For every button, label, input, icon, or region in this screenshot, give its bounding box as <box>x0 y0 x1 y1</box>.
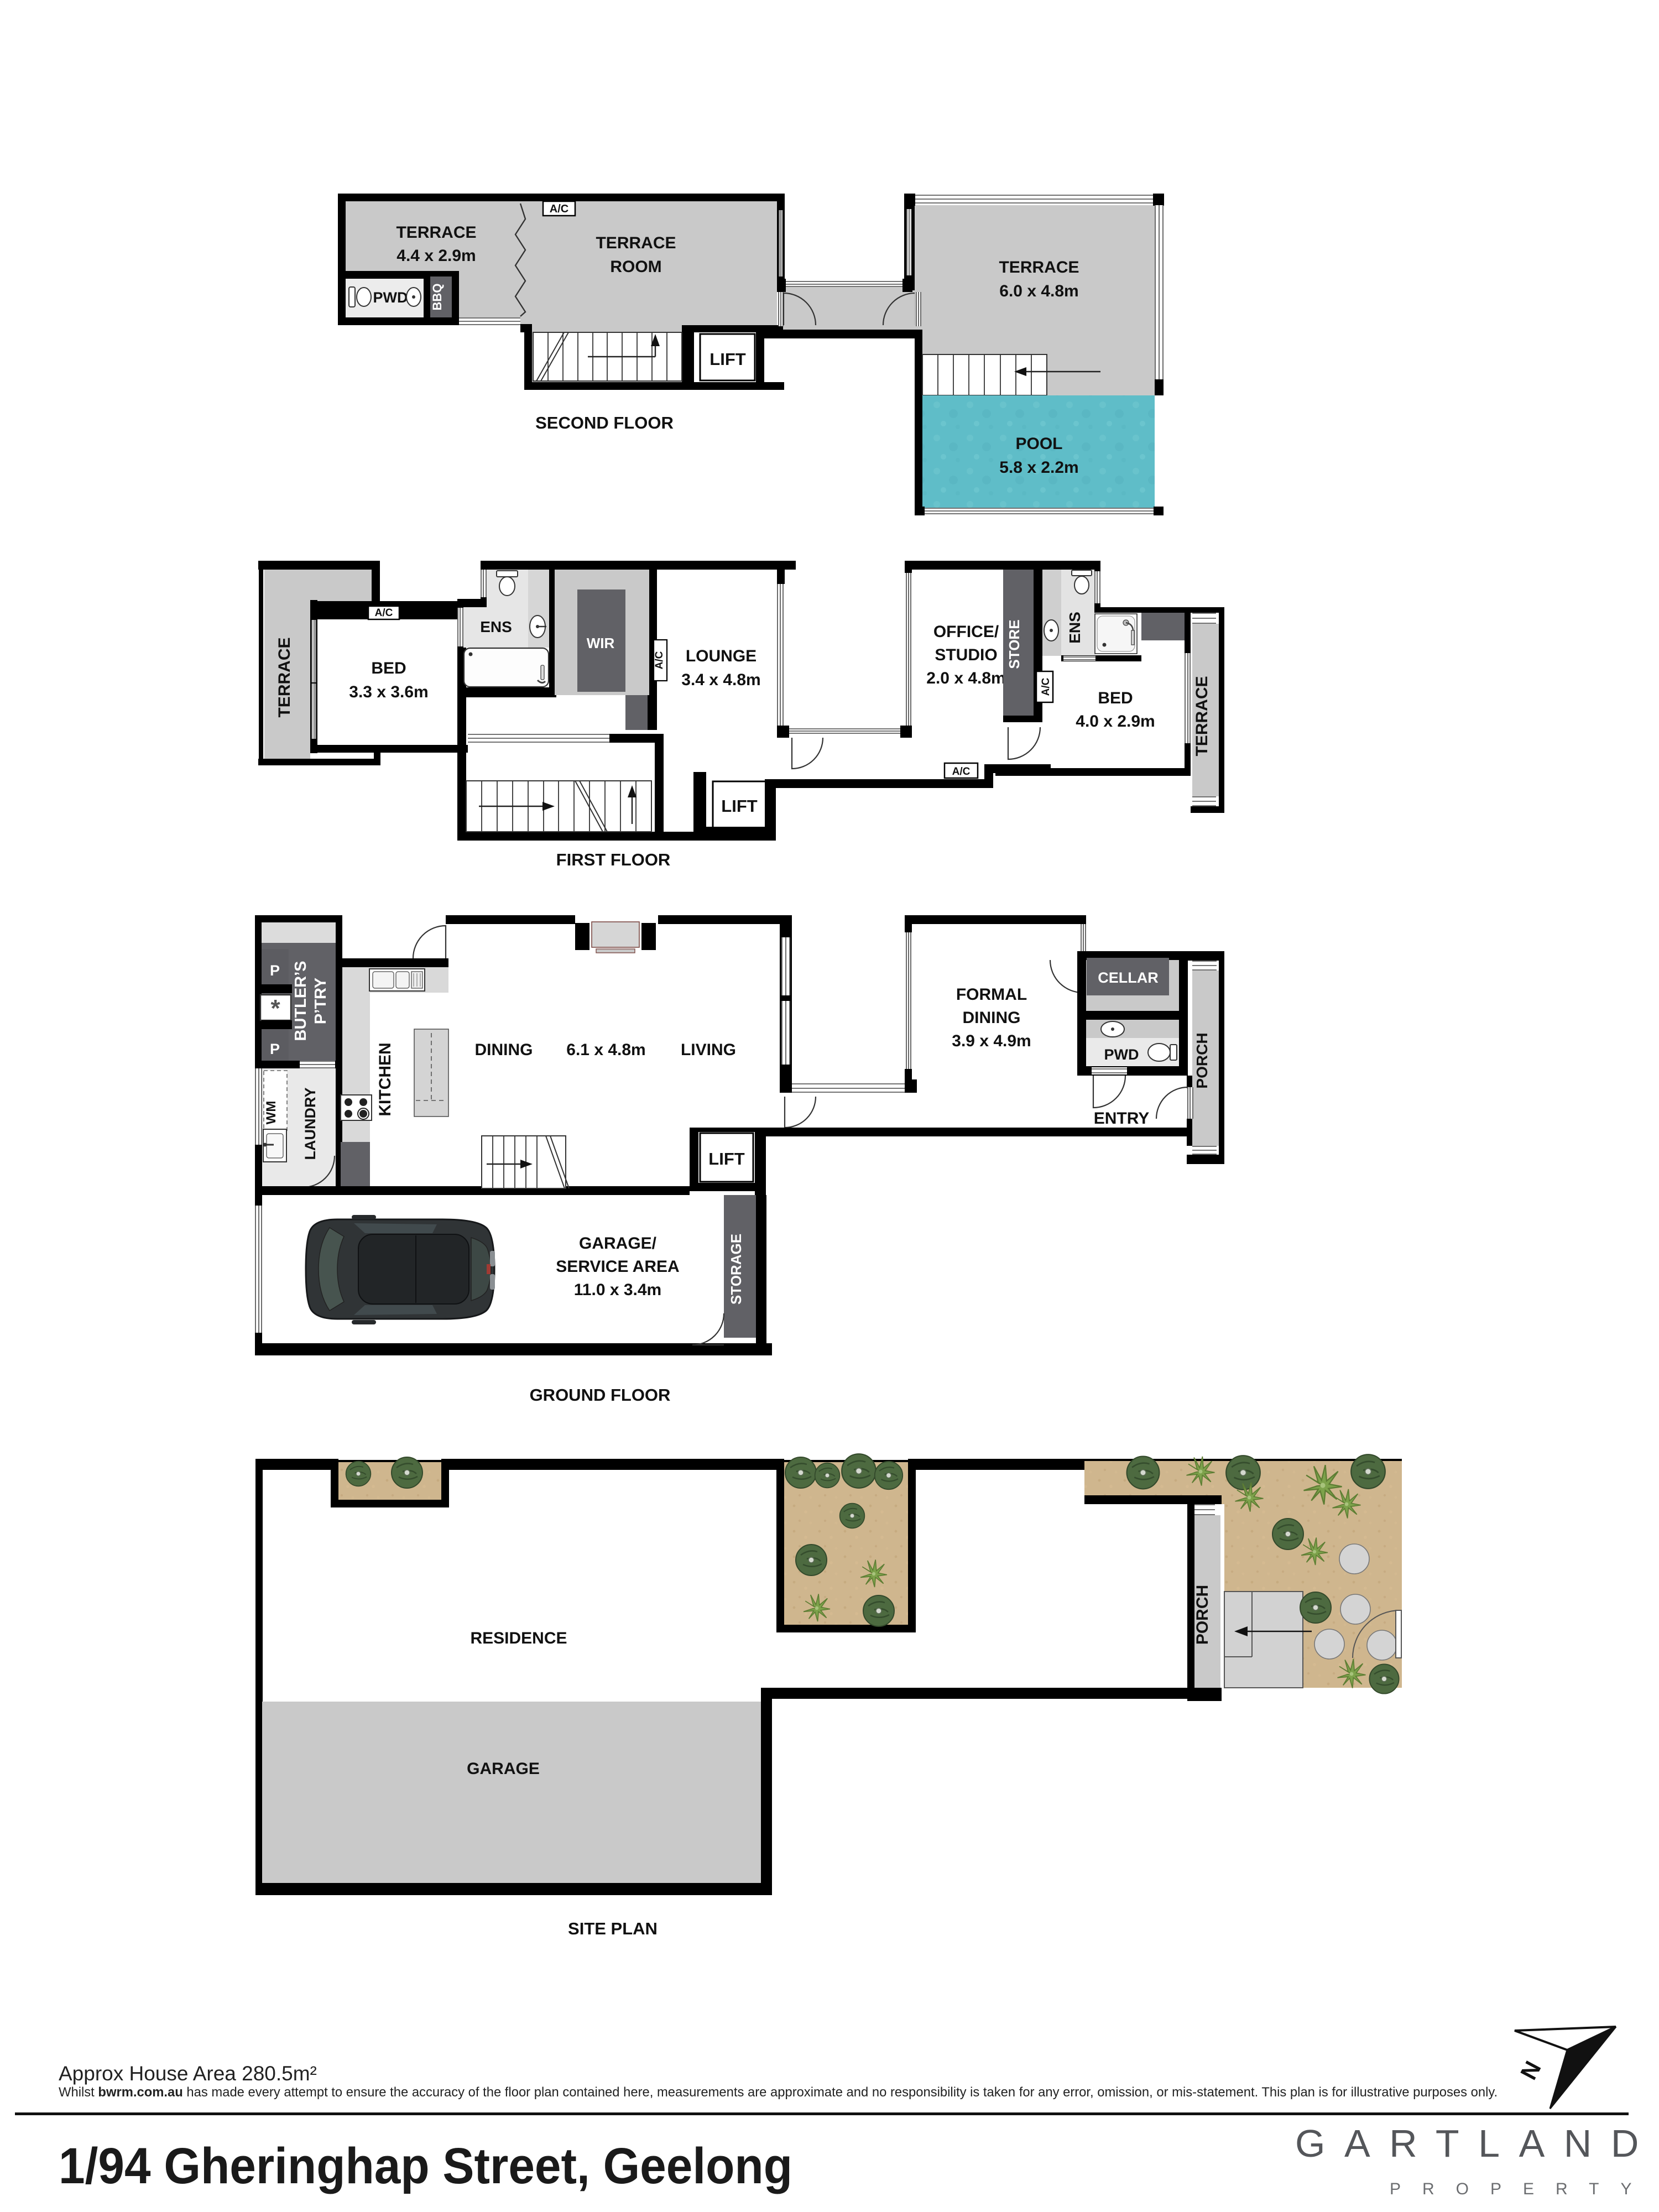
svg-text:4.4 x 2.9m: 4.4 x 2.9m <box>397 247 476 265</box>
svg-text:STUDIO: STUDIO <box>935 646 997 664</box>
svg-text:STORE: STORE <box>1006 619 1022 669</box>
svg-text:*: * <box>270 995 280 1022</box>
svg-text:STORAGE: STORAGE <box>728 1234 744 1305</box>
svg-text:SECOND FLOOR: SECOND FLOOR <box>535 413 674 432</box>
svg-text:CELLAR: CELLAR <box>1098 969 1159 986</box>
svg-text:P’TRY: P’TRY <box>312 978 330 1024</box>
svg-text:PORCH: PORCH <box>1193 1585 1212 1645</box>
svg-text:POOL: POOL <box>1015 435 1062 453</box>
svg-text:3.3 x 3.6m: 3.3 x 3.6m <box>349 683 428 701</box>
svg-text:TERRACE: TERRACE <box>275 637 294 717</box>
svg-text:2.0 x 4.8m: 2.0 x 4.8m <box>926 669 1005 687</box>
svg-text:GARTLAND: GARTLAND <box>1295 2122 1658 2165</box>
svg-text:KITCHEN: KITCHEN <box>376 1042 394 1116</box>
svg-text:BBQ: BBQ <box>430 284 444 311</box>
svg-text:A/C: A/C <box>550 203 568 215</box>
svg-text:DINING: DINING <box>963 1009 1021 1027</box>
svg-text:GARAGE: GARAGE <box>467 1760 540 1778</box>
svg-text:TERRACE: TERRACE <box>596 234 676 252</box>
svg-text:6.0 x 4.8m: 6.0 x 4.8m <box>999 282 1078 300</box>
svg-text:DINING: DINING <box>475 1041 533 1059</box>
svg-text:3.9 x 4.9m: 3.9 x 4.9m <box>952 1032 1031 1050</box>
svg-text:Whilst bwrm.com.au has made ev: Whilst bwrm.com.au has made every attemp… <box>59 2085 1498 2100</box>
svg-text:1/94 Gheringhap Street, Geelon: 1/94 Gheringhap Street, Geelong <box>59 2138 792 2194</box>
svg-text:FIRST FLOOR: FIRST FLOOR <box>556 850 671 869</box>
svg-text:BUTLER’S: BUTLER’S <box>292 961 310 1041</box>
svg-text:TERRACE: TERRACE <box>1193 676 1211 756</box>
svg-text:LAUNDRY: LAUNDRY <box>302 1088 319 1160</box>
svg-text:11.0 x 3.4m: 11.0 x 3.4m <box>574 1281 661 1299</box>
svg-text:WM: WM <box>264 1101 279 1125</box>
svg-text:LIFT: LIFT <box>709 349 745 369</box>
svg-text:LIVING: LIVING <box>681 1041 736 1059</box>
svg-text:SITE PLAN: SITE PLAN <box>568 1919 658 1938</box>
svg-text:PROPERTY: PROPERTY <box>1390 2180 1653 2198</box>
svg-text:ENS: ENS <box>1066 612 1083 644</box>
svg-text:PWD: PWD <box>373 289 408 306</box>
svg-text:A/C: A/C <box>1040 677 1052 696</box>
svg-text:TERRACE: TERRACE <box>999 258 1079 276</box>
svg-text:6.1 x 4.8m: 6.1 x 4.8m <box>566 1041 645 1059</box>
svg-text:A/C: A/C <box>654 651 665 669</box>
svg-text:WIR: WIR <box>587 635 615 651</box>
svg-text:LOUNGE: LOUNGE <box>686 647 757 665</box>
svg-text:LIFT: LIFT <box>721 796 757 816</box>
svg-text:TERRACE: TERRACE <box>396 223 476 242</box>
svg-text:P: P <box>270 1041 280 1057</box>
svg-text:BED: BED <box>1098 689 1133 707</box>
svg-text:RESIDENCE: RESIDENCE <box>470 1629 567 1647</box>
svg-text:A/C: A/C <box>952 766 971 778</box>
svg-text:ENTRY: ENTRY <box>1094 1109 1150 1128</box>
svg-text:A/C: A/C <box>375 607 393 619</box>
svg-text:3.4 x 4.8m: 3.4 x 4.8m <box>681 671 760 689</box>
svg-text:ENS: ENS <box>480 618 512 635</box>
svg-text:LIFT: LIFT <box>708 1149 744 1168</box>
svg-text:5.8 x 2.2m: 5.8 x 2.2m <box>999 458 1078 477</box>
svg-text:OFFICE/: OFFICE/ <box>933 623 999 641</box>
svg-text:4.0 x 2.9m: 4.0 x 2.9m <box>1076 712 1155 731</box>
svg-text:GARAGE/: GARAGE/ <box>579 1234 657 1253</box>
svg-text:SERVICE AREA: SERVICE AREA <box>556 1258 679 1276</box>
svg-text:GROUND FLOOR: GROUND FLOOR <box>530 1385 671 1405</box>
svg-text:FORMAL: FORMAL <box>956 985 1027 1004</box>
svg-text:BED: BED <box>371 659 406 677</box>
svg-text:ROOM: ROOM <box>610 258 661 276</box>
svg-text:P: P <box>270 962 280 979</box>
svg-text:PWD: PWD <box>1104 1046 1139 1063</box>
svg-text:PORCH: PORCH <box>1193 1032 1211 1088</box>
svg-text:Approx House Area 280.5m²: Approx House Area 280.5m² <box>59 2062 317 2085</box>
